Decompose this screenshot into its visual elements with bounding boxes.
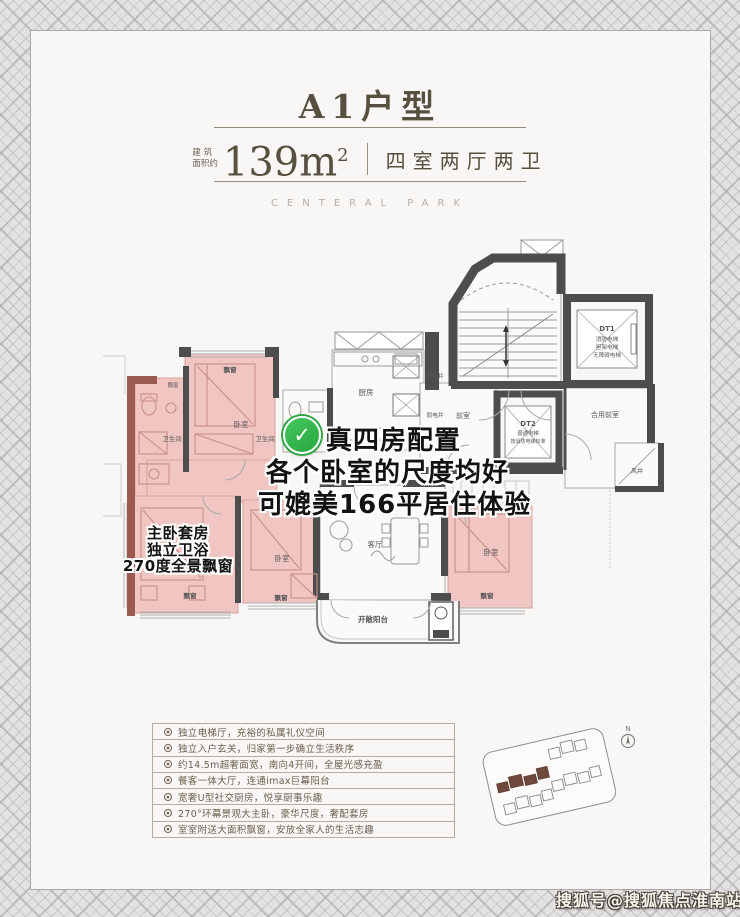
feature-text: 室室附送大面积飘窗，安放全家人的生活志趣 — [178, 822, 374, 836]
svg-text:飘窗: 飘窗 — [167, 381, 179, 389]
area-prefix-line2: 面积约 — [192, 160, 218, 169]
feature-text: 宽奢U型社交厨房，悦享厨事乐趣 — [178, 790, 322, 804]
brand-caption: CENTERAL PARK — [0, 198, 740, 209]
svg-text:卧室: 卧室 — [275, 553, 290, 563]
feature-text: 约14.5m超奢面宽，南向4开间，全屋光感充盈 — [178, 757, 383, 771]
watermark: 搜狐号@搜狐焦点淮南站 — [556, 887, 740, 911]
master-note-line1: 主卧套房 — [106, 525, 250, 542]
svg-text:消防电梯: 消防电梯 — [596, 335, 619, 343]
bullet-icon — [164, 809, 172, 817]
feature-row: 宽奢U型社交厨房，悦享厨事乐趣 — [153, 789, 454, 805]
svg-text:卧室: 卧室 — [484, 547, 499, 557]
svg-text:DT2: DT2 — [520, 420, 536, 428]
feature-row: 270°环幕景观大主卧，豪华尺度，奢配套房 — [153, 805, 454, 821]
header-divider-bottom — [214, 181, 526, 182]
svg-text:飘窗: 飘窗 — [184, 591, 198, 600]
page-title: A1户型 — [0, 80, 740, 128]
svg-text:飘窗: 飘窗 — [224, 365, 238, 374]
header-divider-top — [214, 127, 526, 128]
balcony — [317, 600, 459, 643]
spec-divider — [367, 143, 368, 175]
elevator-dt2: DT2 普通电梯 按消防电梯标准 — [505, 406, 551, 458]
svg-text:DT1: DT1 — [599, 325, 615, 333]
svg-text:担架电梯: 担架电梯 — [596, 343, 619, 351]
feature-text: 独立电梯厅，充裕的私属礼仪空间 — [178, 725, 325, 739]
area-sup: 2 — [337, 145, 348, 166]
svg-text:卫生间: 卫生间 — [255, 434, 275, 443]
svg-text:强电井: 强电井 — [426, 372, 444, 380]
master-suite-note: 主卧套房 独立卫浴 270度全景飘窗 — [106, 525, 250, 575]
master-note-line3: 270度全景飘窗 — [106, 558, 250, 575]
feature-row: 约14.5m超奢面宽，南向4开间，全屋光感充盈 — [153, 757, 454, 773]
svg-text:卧室: 卧室 — [234, 419, 249, 429]
highlighted-building-row — [495, 766, 550, 793]
svg-text:前室: 前室 — [456, 411, 470, 420]
area-spec: 建 筑 面积约 139m2 四室两厅两卫 — [0, 136, 740, 182]
bullet-icon — [164, 728, 172, 736]
compass-north-label: N — [618, 726, 638, 733]
svg-text:无障碍电梯: 无障碍电梯 — [593, 351, 621, 359]
svg-text:合用前室: 合用前室 — [591, 410, 619, 419]
area-prefix: 建 筑 面积约 — [192, 149, 218, 169]
area-prefix-line1: 建 筑 — [192, 149, 218, 158]
highlight-note-line3: 可媲美166平居住体验 — [258, 484, 531, 521]
compass: N — [618, 726, 638, 753]
svg-text:厨房: 厨房 — [359, 387, 374, 397]
layout-text: 四室两厅两卫 — [386, 145, 548, 174]
svg-text:按消防电梯标准: 按消防电梯标准 — [510, 438, 545, 445]
bullet-icon — [164, 776, 172, 784]
svg-text:普通电梯: 普通电梯 — [517, 429, 539, 437]
svg-text:客厅: 客厅 — [368, 539, 383, 549]
svg-text:飘窗: 飘窗 — [481, 591, 495, 600]
feature-row: 独立入户玄关，归家第一步确立生活秩序 — [153, 740, 454, 756]
master-note-line2: 独立卫浴 — [106, 542, 250, 559]
feature-row: 餐客一体大厅，连通imax巨幕阳台 — [153, 773, 454, 789]
bullet-icon — [164, 793, 172, 801]
check-icon-glyph: ✓ — [293, 423, 311, 447]
feature-row: 室室附送大面积飘窗，安放全家人的生活志趣 — [153, 822, 454, 837]
svg-text:风井: 风井 — [631, 467, 643, 475]
svg-text:飘窗: 飘窗 — [275, 593, 289, 602]
area-value: 139m2 — [223, 136, 349, 182]
bullet-icon — [164, 744, 172, 752]
compass-icon — [620, 733, 636, 749]
svg-text:开敞阳台: 开敞阳台 — [358, 614, 388, 624]
elevator-dt1: DT1 消防电梯 担架电梯 无障碍电梯 — [577, 310, 637, 368]
feature-row: 独立电梯厅，充裕的私属礼仪空间 — [153, 724, 454, 740]
feature-text: 独立入户玄关，归家第一步确立生活秩序 — [178, 741, 354, 755]
bullet-icon — [164, 825, 172, 833]
feature-text: 270°环幕景观大主卧，豪华尺度，奢配套房 — [178, 806, 369, 820]
feature-list: 独立电梯厅，充裕的私属礼仪空间 独立入户玄关，归家第一步确立生活秩序 约14.5… — [152, 723, 455, 838]
feature-text: 餐客一体大厅，连通imax巨幕阳台 — [178, 773, 330, 787]
svg-text:卫生间: 卫生间 — [162, 434, 182, 443]
bullet-icon — [164, 760, 172, 768]
poster-page: { "card": { "title": "A1户型", "area_label… — [0, 0, 740, 917]
svg-text:弱电井: 弱电井 — [426, 411, 444, 419]
check-icon: ✓ — [283, 416, 321, 454]
